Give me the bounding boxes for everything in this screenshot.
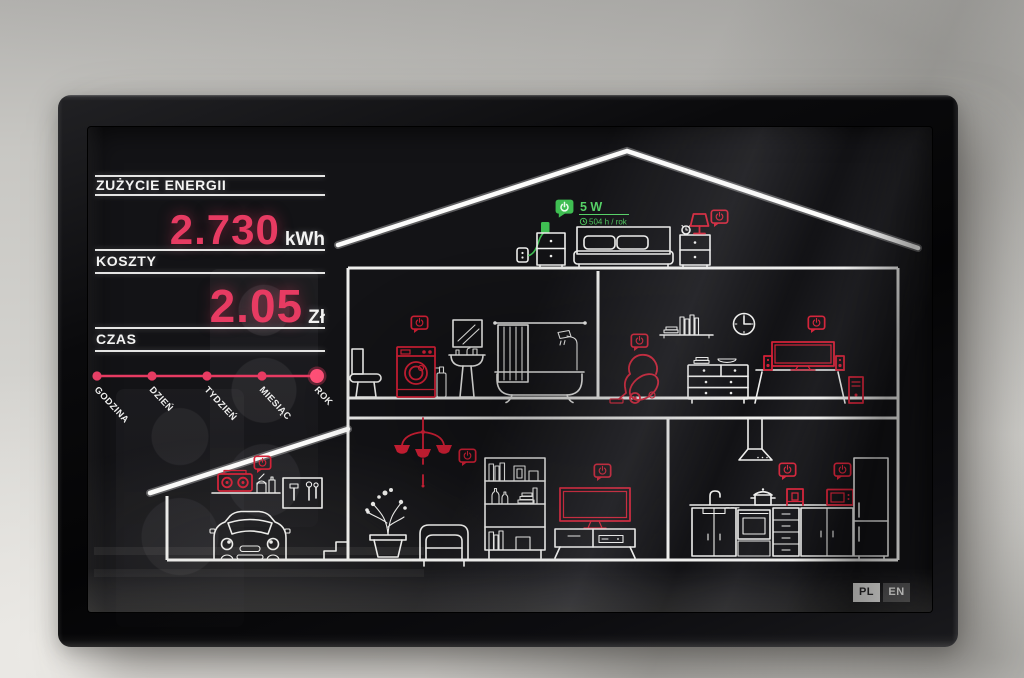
- shower-icon: [493, 321, 587, 382]
- divider: [95, 272, 325, 274]
- cost-label: KOSZTY: [96, 253, 156, 269]
- chandelier-icon[interactable]: [394, 418, 452, 488]
- coffee-machine-icon[interactable]: [787, 489, 803, 505]
- sink-icon: [449, 348, 485, 397]
- power-bubble-lamp[interactable]: [711, 210, 727, 227]
- room-bedroom: 5 W 504 h / rok: [517, 200, 728, 268]
- bed-icon: [574, 227, 673, 268]
- cooking-pot-icon: [751, 488, 775, 505]
- photo-background: ZUŻYCIE ENERGII 2.730 kWh KOSZTY 2.05 Zł…: [0, 0, 1024, 678]
- cost-value-row: 2.05 Zł: [210, 283, 325, 329]
- active-device-power-bubble[interactable]: [556, 200, 574, 218]
- wall-clock-icon: [734, 314, 755, 335]
- alarm-clock-icon: [682, 226, 690, 235]
- stairs-icon: [324, 542, 348, 560]
- energy-unit: kWh: [285, 230, 325, 251]
- dresser-icon: [688, 358, 748, 404]
- time-label: CZAS: [96, 331, 137, 347]
- language-en-button[interactable]: EN: [883, 583, 910, 602]
- timeline-dot-rok-selected[interactable]: [310, 369, 324, 383]
- timeline-label-tydzien[interactable]: TYDZIEŃ: [203, 385, 239, 423]
- energy-value-row: 2.730 kWh: [170, 209, 325, 251]
- boombox-icon[interactable]: [218, 471, 252, 492]
- drawer-stack-icon: [773, 508, 799, 556]
- monitor: ZUŻYCIE ENERGII 2.730 kWh KOSZTY 2.05 Zł…: [58, 95, 958, 647]
- clock-icon: [580, 218, 586, 224]
- power-bubble-microwave[interactable]: [834, 463, 850, 480]
- energy-value: 2.730: [170, 209, 280, 251]
- power-bubble-vacuum[interactable]: [631, 334, 647, 351]
- language-switcher: PL EN: [853, 583, 910, 602]
- potted-plant-icon: [365, 488, 407, 557]
- timeline-dot-miesiac[interactable]: [257, 371, 266, 380]
- time-range-slider[interactable]: GODZINA DZIEŃ TYDZIEŃ MIESIĄC ROK: [88, 363, 378, 443]
- divider: [95, 249, 325, 251]
- divider: [95, 350, 325, 352]
- active-device-usage: 504 h / rok: [589, 218, 628, 227]
- pegboard-tools-icon: [283, 478, 322, 508]
- timeline-label-dzien[interactable]: DZIEŃ: [148, 385, 176, 414]
- cost-value: 2.05: [210, 283, 304, 329]
- timeline-dot-tydzien[interactable]: [202, 371, 211, 380]
- power-bubble-coffee-machine[interactable]: [779, 463, 795, 480]
- stats-panel: ZUŻYCIE ENERGII 2.730 kWh KOSZTY 2.05 Zł…: [95, 127, 325, 457]
- spray-bottle-icon: [436, 367, 446, 397]
- washing-machine-icon[interactable]: [397, 347, 435, 397]
- timeline-label-miesiac[interactable]: MIESIĄC: [258, 385, 294, 422]
- room-bathroom: [350, 316, 587, 402]
- sink-faucet-icon: [703, 491, 739, 514]
- power-bubble-tv-upper[interactable]: [808, 316, 824, 333]
- oven-icon: [738, 510, 770, 556]
- microwave-icon[interactable]: [827, 490, 853, 506]
- roof: [338, 151, 918, 248]
- nightstand-left-icon: [537, 233, 565, 268]
- tv-icon[interactable]: [772, 342, 834, 370]
- cost-unit: Zł: [308, 308, 325, 329]
- timeline-label-godzina[interactable]: GODZINA: [93, 385, 131, 425]
- energy-label: ZUŻYCIE ENERGII: [96, 177, 226, 193]
- car-icon: [210, 512, 290, 561]
- fridge-icon: [854, 458, 888, 560]
- nightstand-right-icon: [680, 235, 710, 268]
- bookcase-icon: [485, 458, 545, 558]
- timeline-dot-dzien[interactable]: [147, 371, 156, 380]
- room-living-lower: [365, 418, 635, 566]
- charging-phone-icon[interactable]: [541, 222, 550, 233]
- power-outlet-icon: [517, 248, 528, 262]
- power-bubble-washing-machine[interactable]: [411, 316, 427, 333]
- room-kitchen: [690, 418, 888, 560]
- timeline-dot-godzina[interactable]: [92, 371, 101, 380]
- divider: [95, 327, 325, 329]
- paint-cans-icon: [257, 474, 275, 493]
- mirror-icon: [453, 320, 482, 347]
- active-device-power: 5 W: [580, 200, 602, 214]
- tv-stand-icon: [555, 529, 635, 558]
- tv-lower-icon[interactable]: [560, 488, 630, 528]
- screen: ZUŻYCIE ENERGII 2.730 kWh KOSZTY 2.05 Zł…: [88, 127, 932, 612]
- power-bubble-tv-lower[interactable]: [594, 464, 610, 481]
- divider: [95, 194, 325, 196]
- timeline-label-rok[interactable]: ROK: [313, 385, 335, 408]
- language-pl-button[interactable]: PL: [853, 583, 880, 602]
- room-living-upper: [610, 314, 863, 406]
- lamp-icon[interactable]: [691, 214, 709, 234]
- range-hood-icon: [739, 418, 772, 460]
- power-bubble-chandelier[interactable]: [459, 449, 475, 466]
- wall-shelf-icon: [660, 315, 713, 338]
